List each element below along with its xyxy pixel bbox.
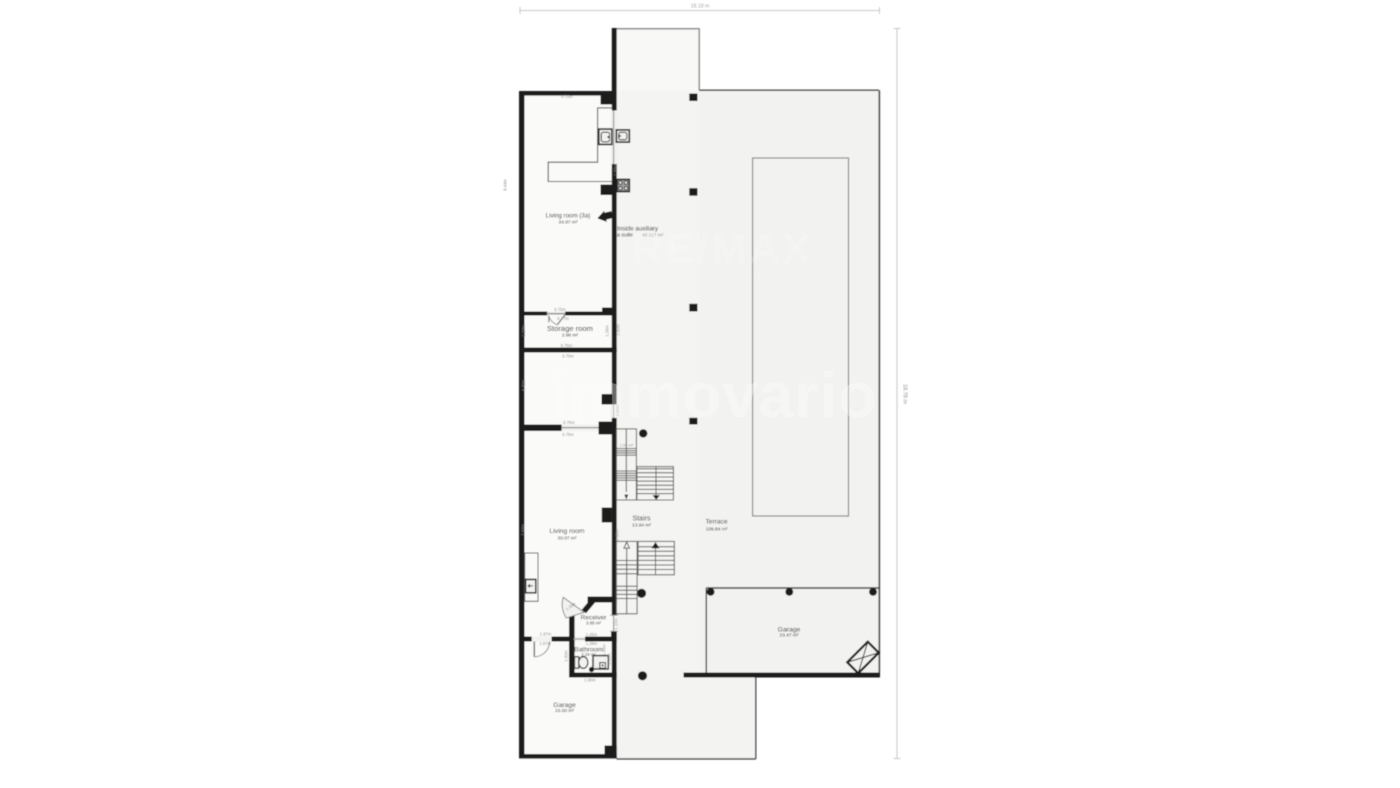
svg-text:15.50 m²: 15.50 m² [555, 708, 574, 714]
svg-text:immovario: immovario [550, 361, 878, 431]
svg-text:2.24 m²: 2.24 m² [581, 652, 596, 657]
svg-text:2.66 m²: 2.66 m² [562, 333, 579, 339]
svg-text:Terrace: Terrace [706, 519, 728, 526]
svg-text:1.26m: 1.26m [521, 325, 526, 337]
svg-text:3.85 m²: 3.85 m² [586, 621, 601, 626]
svg-text:23.47 m²: 23.47 m² [780, 633, 799, 639]
svg-text:109.84 m²: 109.84 m² [706, 527, 728, 533]
svg-text:Garage: Garage [553, 702, 576, 709]
svg-text:6.77m: 6.77m [557, 316, 569, 321]
svg-text:1.45m: 1.45m [586, 632, 598, 637]
svg-text:13.94 m²: 13.94 m² [632, 523, 651, 529]
svg-text:a suite: a suite [617, 233, 633, 239]
svg-text:1.56 m²: 1.56 m² [620, 443, 634, 448]
svg-text:1.40m: 1.40m [607, 653, 612, 665]
svg-text:18.18 m: 18.18 m [691, 4, 710, 10]
svg-text:Storage room: Storage room [547, 324, 593, 333]
svg-text:18.78 m: 18.78 m [902, 384, 908, 404]
svg-text:1.10m: 1.10m [613, 618, 618, 630]
svg-text:6.75m: 6.75m [554, 307, 566, 312]
svg-text:Living room: Living room [549, 528, 584, 535]
svg-text:6.75m: 6.75m [561, 94, 573, 99]
svg-text:Stairs: Stairs [633, 516, 651, 523]
svg-text:8.44m: 8.44m [503, 179, 508, 191]
svg-text:RE/MAX: RE/MAX [632, 225, 813, 272]
svg-text:2.80m: 2.80m [616, 324, 621, 336]
svg-text:Garage: Garage [778, 627, 801, 634]
svg-text:1.28m: 1.28m [586, 641, 598, 646]
svg-text:7.44m: 7.44m [521, 524, 526, 536]
svg-text:1.80m: 1.80m [584, 678, 596, 683]
svg-text:6.75m: 6.75m [562, 432, 574, 437]
svg-text:30.07 m²: 30.07 m² [558, 536, 577, 542]
svg-text:1.97m: 1.97m [540, 632, 552, 637]
svg-text:4.46m: 4.46m [521, 379, 526, 391]
svg-text:6.75m: 6.75m [561, 343, 573, 348]
svg-text:6.75m: 6.75m [562, 354, 574, 359]
svg-text:34.87 m²: 34.87 m² [559, 220, 578, 226]
svg-text:1.97m: 1.97m [539, 641, 551, 646]
svg-text:COLLECTION: COLLECTION [708, 269, 806, 279]
svg-text:1.95m: 1.95m [613, 164, 618, 176]
svg-text:2.60m: 2.60m [615, 529, 620, 541]
svg-text:Living room (3a): Living room (3a) [546, 213, 591, 220]
svg-text:1.50m: 1.50m [563, 650, 568, 662]
svg-text:1.26m: 1.26m [605, 325, 610, 337]
